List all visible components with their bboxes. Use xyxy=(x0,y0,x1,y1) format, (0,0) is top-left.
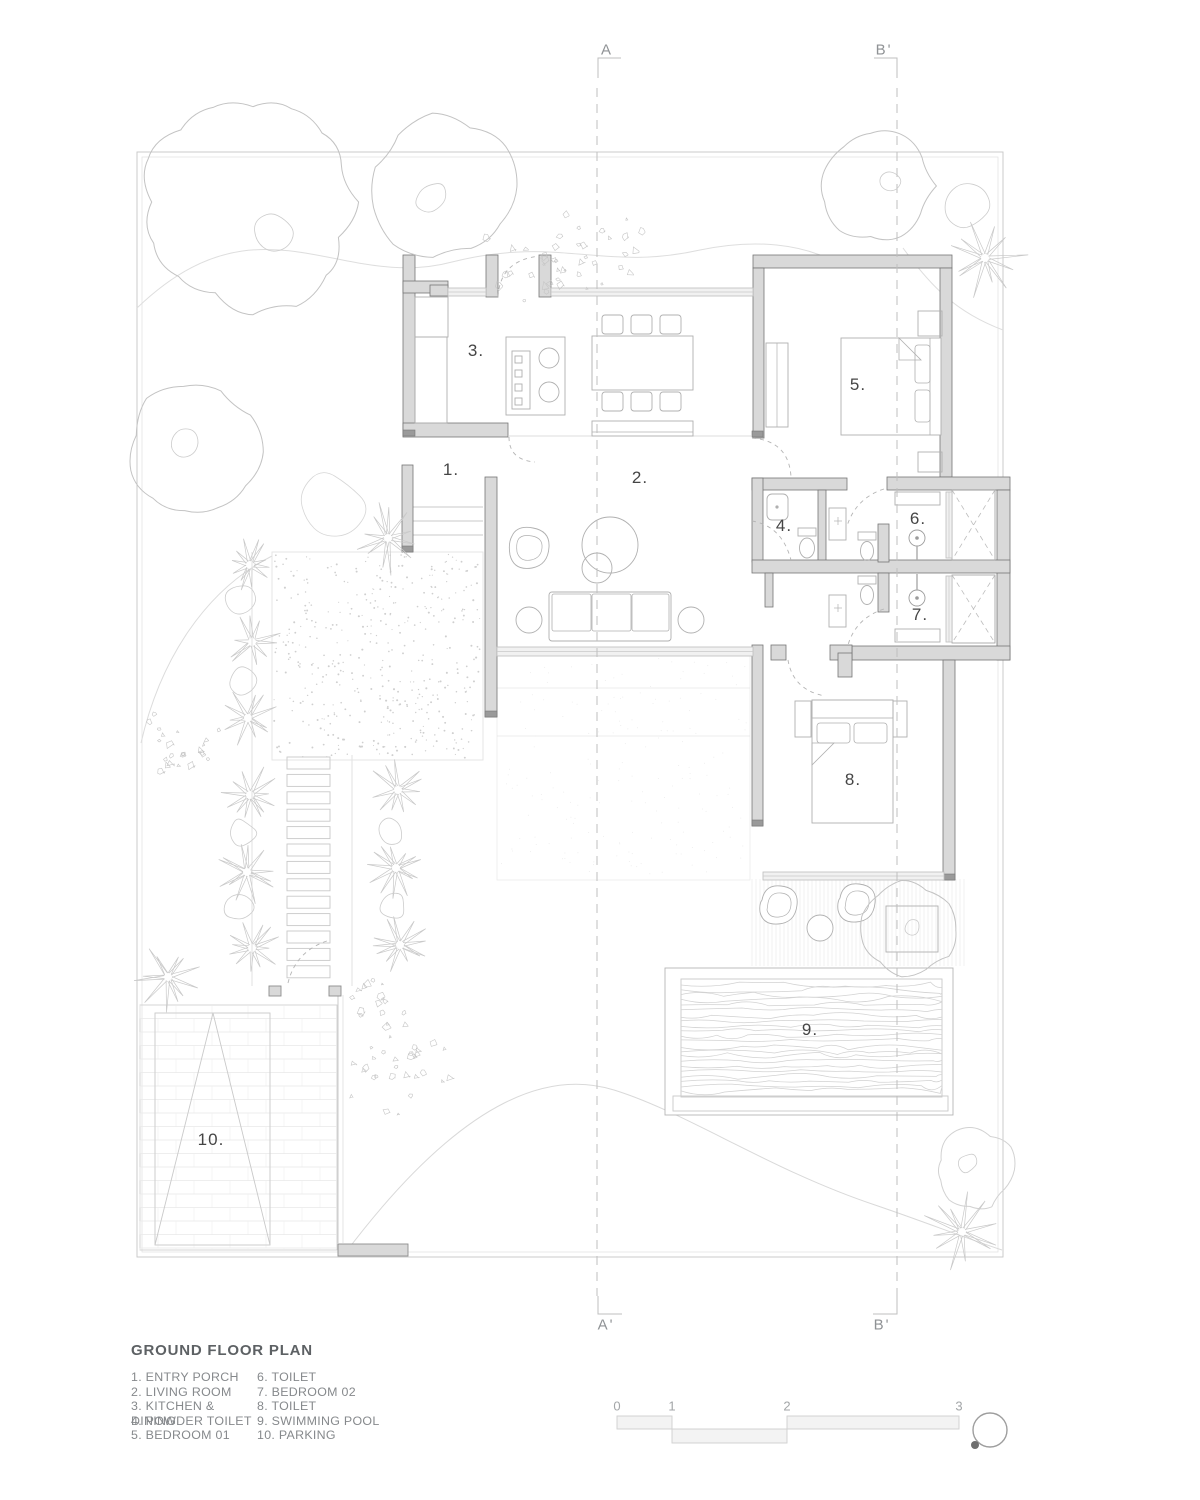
legend-item: 10. PARKING xyxy=(257,1428,380,1443)
legend-item: 5. BEDROOM 01 xyxy=(131,1428,253,1443)
legend-item: 2. LIVING ROOM xyxy=(131,1385,253,1400)
legend-column-1: 1. ENTRY PORCH 2. LIVING ROOM 3. KITCHEN… xyxy=(131,1370,253,1443)
room-label-living-room: 2. xyxy=(632,468,648,488)
section-marker-b-bottom: B' xyxy=(874,1317,891,1334)
room-label-parking: 10. xyxy=(198,1130,225,1150)
room-label-toilet-7: 7. xyxy=(912,605,928,625)
legend-item: 6. TOILET xyxy=(257,1370,380,1385)
section-lines-layer xyxy=(597,58,897,1314)
plan-title: GROUND FLOOR PLAN xyxy=(131,1342,380,1359)
scale-bar-graphic xyxy=(617,1416,959,1443)
scale-tick-2: 2 xyxy=(783,1399,790,1414)
scale-tick-3: 3 xyxy=(955,1399,962,1414)
legend: GROUND FLOOR PLAN 1. ENTRY PORCH 2. LIVI… xyxy=(131,1342,380,1443)
floor-plan-drawing xyxy=(0,0,1200,1500)
floor-plan-sheet: A B' A' B' 1. 2. 3. 4. 5. 6. 7. 8. 9. 10… xyxy=(0,0,1200,1500)
scale-tick-1: 1 xyxy=(668,1399,675,1414)
room-label-swimming-pool: 9. xyxy=(802,1020,818,1040)
room-label-bedroom-02: 8. xyxy=(845,770,861,790)
section-marker-b-top: B' xyxy=(876,42,893,59)
room-label-toilet-6: 6. xyxy=(910,509,926,529)
legend-item: 7. BEDROOM 02 xyxy=(257,1385,380,1400)
room-label-entry-porch: 1. xyxy=(443,460,459,480)
room-label-powder-toilet: 4. xyxy=(776,516,792,536)
scale-tick-0: 0 xyxy=(613,1399,620,1414)
legend-item: 3. KITCHEN & DINING xyxy=(131,1399,253,1414)
legend-column-2: 6. TOILET 7. BEDROOM 02 8. TOILET 9. SWI… xyxy=(257,1370,380,1443)
section-marker-a-bottom: A' xyxy=(598,1317,615,1334)
legend-item: 9. SWIMMING POOL xyxy=(257,1414,380,1429)
room-label-kitchen: 3. xyxy=(468,341,484,361)
legend-item: 4. POWDER TOILET xyxy=(131,1414,253,1429)
room-label-bedroom-01: 5. xyxy=(850,375,866,395)
section-marker-a-top: A xyxy=(601,42,613,59)
legend-item: 8. TOILET xyxy=(257,1399,380,1414)
north-arrow-icon xyxy=(971,1413,1007,1449)
legend-item: 1. ENTRY PORCH xyxy=(131,1370,253,1385)
